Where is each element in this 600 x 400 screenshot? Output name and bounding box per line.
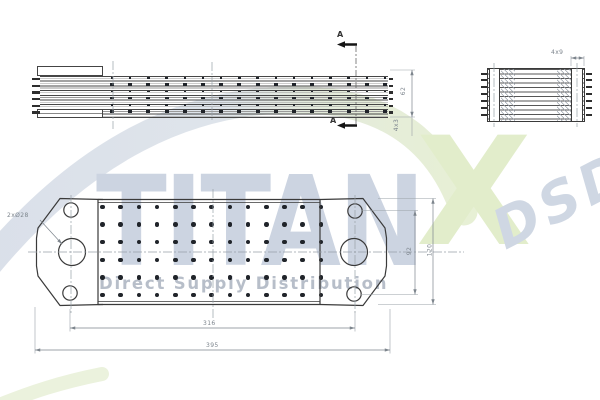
drawing-sheet: TITAN X DSD Direct Supply Distribution [0,0,600,400]
dim-side-stack-height: 62 [401,87,407,95]
dimension-lines [35,58,584,350]
section-label-top: A [337,31,343,39]
dim-plan-port-span: 316 [203,321,216,327]
dim-plan-length: 395 [206,343,219,349]
callout-leader [40,220,62,244]
hole-callout: 2xØ28 [7,213,29,219]
section-label-bottom: A [330,117,336,125]
section-line [337,41,357,128]
dim-plan-height: 120 [427,244,433,257]
plan-bolt-hole-bottom-left [63,286,77,300]
plan-bolt-hole-bottom-right [347,287,361,301]
dim-end-plate-width: 4x9 [551,50,563,56]
dim-side-plate-pitch: 4x3 [394,119,400,131]
drawing-linework [0,0,600,400]
centerlines [28,61,577,319]
extension-lines [35,56,584,354]
dim-plan-bolt-span: 92 [407,247,413,255]
